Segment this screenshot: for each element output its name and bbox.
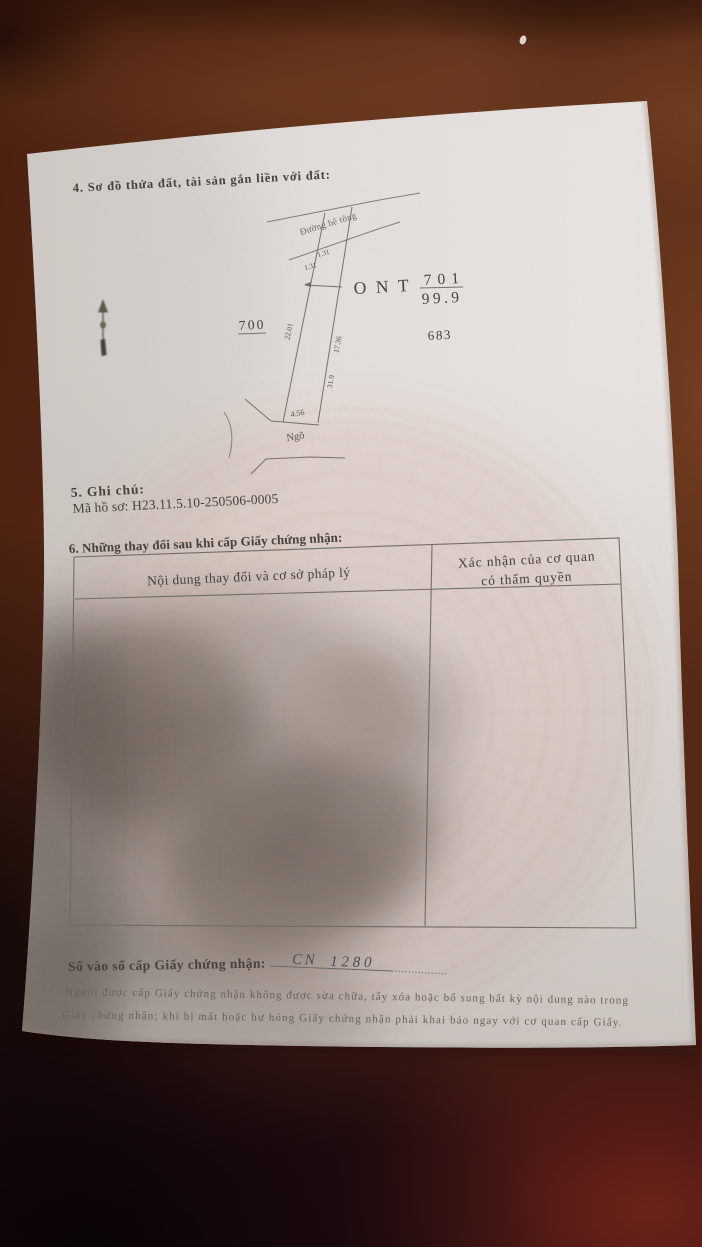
svg-text:ONT: ONT <box>353 275 418 298</box>
svg-text:700: 700 <box>238 317 266 333</box>
svg-text:701: 701 <box>423 270 465 289</box>
svg-text:99.9: 99.9 <box>421 289 463 308</box>
svg-text:CN: CN <box>292 952 317 968</box>
svg-text:683: 683 <box>427 327 452 343</box>
